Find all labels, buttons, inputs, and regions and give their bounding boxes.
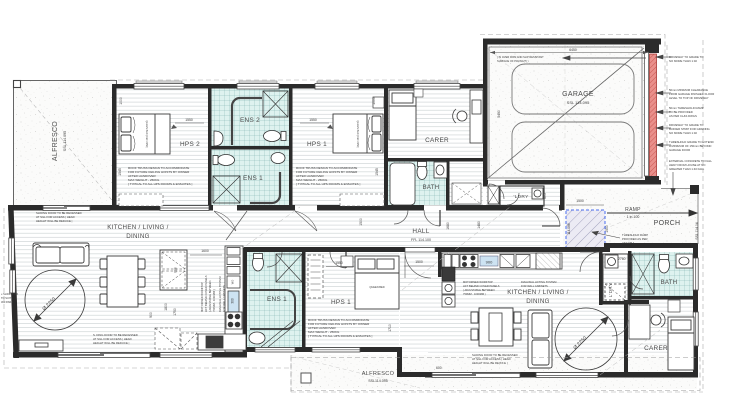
svg-text:1750: 1750 <box>173 308 177 316</box>
svg-text:1500: 1500 <box>605 225 609 233</box>
svg-text:ENS 1: ENS 1 <box>243 175 263 182</box>
svg-text:SSL114.095: SSL114.095 <box>368 379 388 383</box>
svg-text:HPS 1: HPS 1 <box>331 299 351 306</box>
svg-text:LIFT BEHIND COVER PANELS: LIFT BEHIND COVER PANELS <box>204 275 208 312</box>
svg-text:HEIGHT WILL BE RE|XX:E |: HEIGHT WILL BE RE|XX:E | <box>472 361 508 365</box>
svg-text:600: 600 <box>436 366 442 370</box>
svg-text:1550: 1550 <box>309 118 317 122</box>
svg-text:[ TYPICAL TO ALL HPS ROOMS & E: [ TYPICAL TO ALL HPS ROOMS & ENSUITES ] <box>128 182 192 186</box>
svg-text:1000: 1000 <box>119 97 123 105</box>
svg-text:HALL: HALL <box>412 228 429 235</box>
svg-text:1 in 100: 1 in 100 <box>627 215 640 219</box>
svg-text:SSL 114.095: SSL 114.095 <box>63 131 67 151</box>
svg-text:ALFRESCO: ALFRESCO <box>362 371 395 377</box>
svg-text:114.086: 114.086 <box>567 223 571 235</box>
svg-text:1500: 1500 <box>415 260 423 264</box>
svg-text:ENS 2: ENS 2 <box>240 117 260 124</box>
svg-text:SSL 114.095: SSL 114.095 <box>567 100 590 105</box>
svg-text:AS1428.1: AS1428.1 <box>622 241 635 245</box>
svg-text:LEVEL TO TOP OF DRIVEWAY: LEVEL TO TOP OF DRIVEWAY <box>669 96 709 100</box>
svg-text:FOR WALL CABINETS: FOR WALL CABINETS <box>222 285 226 312</box>
svg-text:DINING: DINING <box>126 233 149 240</box>
svg-text:( ADJUSTABLE BETWEEN: ( ADJUSTABLE BETWEEN <box>463 288 495 292</box>
svg-text:HEIGHT WILL BE REDUCE |: HEIGHT WILL BE REDUCE | <box>36 219 73 223</box>
svg-text:GARAGE: GARAGE <box>562 91 594 98</box>
svg-text:BATH: BATH <box>661 280 678 286</box>
svg-text:TO SUIT: TO SUIT <box>1 296 12 300</box>
svg-text:L’DRY: L’DRY <box>608 283 613 297</box>
svg-text:DIAGONAL LIFTING SYSTEM: DIAGONAL LIFTING SYSTEM <box>218 277 222 312</box>
svg-text:1600: 1600 <box>201 249 209 253</box>
svg-text:NO MORE THAN 1:40: NO MORE THAN 1:40 <box>669 131 697 135</box>
svg-text:AS PER CL&S DWGS: AS PER CL&S DWGS <box>669 114 697 118</box>
svg-text:MOTORISED WORKTOP: MOTORISED WORKTOP <box>463 280 493 284</box>
svg-text:1680: 1680 <box>446 222 450 230</box>
svg-text:CARER: CARER <box>644 345 668 352</box>
svg-text:[ TYPICAL TO ALL HPS ROOMS & E: [ TYPICAL TO ALL HPS ROOMS & ENSUITES ] <box>308 334 372 338</box>
svg-text:KITCHEN / LIVING /: KITCHEN / LIVING / <box>107 224 168 231</box>
svg-text:HEIGHT WILL BE REDUCE |: HEIGHT WILL BE REDUCE | <box>93 341 130 345</box>
svg-text:ENS 1: ENS 1 <box>267 296 287 303</box>
svg-text:QUEEN BED (REF 2150): QUEEN BED (REF 2150) <box>145 120 148 147</box>
svg-text:1500: 1500 <box>359 218 363 226</box>
svg-text:QUEEN BED: QUEEN BED <box>369 285 384 289</box>
svg-text:MOTORISED WORKTOP: MOTORISED WORKTOP <box>200 282 204 312</box>
svg-text:ALFRESCO: ALFRESCO <box>52 121 59 161</box>
svg-text:SURFACE OF PAVING(?) ): SURFACE OF PAVING(?) ) <box>497 59 529 63</box>
svg-text:1550: 1550 <box>335 261 343 265</box>
svg-text:NO MORE THAN 1:40: NO MORE THAN 1:40 <box>669 59 697 63</box>
svg-text:1000: 1000 <box>372 97 376 105</box>
svg-text:FOR WALL CABINETS: FOR WALL CABINETS <box>521 284 548 288</box>
svg-text:1500: 1500 <box>576 199 584 203</box>
svg-text:QUEEN BED (REF 2150): QUEEN BED (REF 2150) <box>356 120 359 147</box>
svg-text:5490: 5490 <box>497 110 501 118</box>
svg-text:GREATER THAN 1:40 FALL: GREATER THAN 1:40 FALL <box>669 167 705 171</box>
svg-text:≤ SLIDING DR: ≤ SLIDING DR <box>1 292 18 296</box>
svg-text:DINING: DINING <box>526 298 549 305</box>
svg-text:GARAGE DOOR: GARAGE DOOR <box>669 148 690 152</box>
svg-text:900: 900 <box>486 260 493 265</box>
svg-text:DIAGONAL LIFTING SYSTEM: DIAGONAL LIFTING SYSTEM <box>521 280 556 284</box>
svg-text:900: 900 <box>173 267 177 273</box>
svg-text:PORCH: PORCH <box>654 220 681 227</box>
svg-text:[ TYPICAL TO ALL HPS ROOMS & E: [ TYPICAL TO ALL HPS ROOMS & ENSUITES ] <box>296 182 360 186</box>
svg-text:1710: 1710 <box>388 324 392 332</box>
svg-text:LIFT BEHIND COVER PANELS: LIFT BEHIND COVER PANELS <box>463 284 500 288</box>
svg-text:2760: 2760 <box>618 257 626 261</box>
svg-text:BATH: BATH <box>423 185 440 191</box>
svg-text:( ADJUSTABLE BETWEEN: ( ADJUSTABLE BETWEEN <box>208 280 212 312</box>
svg-text:1545: 1545 <box>375 168 379 176</box>
svg-text:6450: 6450 <box>569 48 577 52</box>
svg-text:1545: 1545 <box>118 168 122 176</box>
svg-text:605: 605 <box>543 193 547 199</box>
svg-text:SSL 114.04: SSL 114.04 <box>695 222 699 239</box>
svg-text:HPS 1: HPS 1 <box>307 141 327 148</box>
svg-text:300: 300 <box>231 298 235 304</box>
svg-text:KITCHEN / LIVING /: KITCHEN / LIVING / <box>507 289 568 296</box>
svg-text:( IN OVER FIRM AND SLIP RESIST: ( IN OVER FIRM AND SLIP RESISTANT <box>497 55 544 59</box>
svg-text:1800: 1800 <box>164 303 168 311</box>
svg-text:750MM - 1030MM ): 750MM - 1030MM ) <box>212 289 216 312</box>
svg-text:WO: WO <box>231 280 235 284</box>
svg-text:900: 900 <box>149 312 153 318</box>
svg-text:300 PARA: 300 PARA <box>1 300 13 304</box>
svg-text:CARER: CARER <box>425 137 449 144</box>
svg-text:ʹLDRY: ʹLDRY <box>513 193 529 200</box>
svg-text:300: 300 <box>450 270 456 274</box>
svg-text:RAMP: RAMP <box>625 207 641 213</box>
svg-text:1550: 1550 <box>185 118 193 122</box>
svg-text:FFL 114.100: FFL 114.100 <box>411 238 431 242</box>
svg-text:750MM - 1030MM ): 750MM - 1030MM ) <box>463 292 486 296</box>
svg-text:HPS 2: HPS 2 <box>180 141 200 148</box>
svg-text:1480: 1480 <box>477 221 481 229</box>
